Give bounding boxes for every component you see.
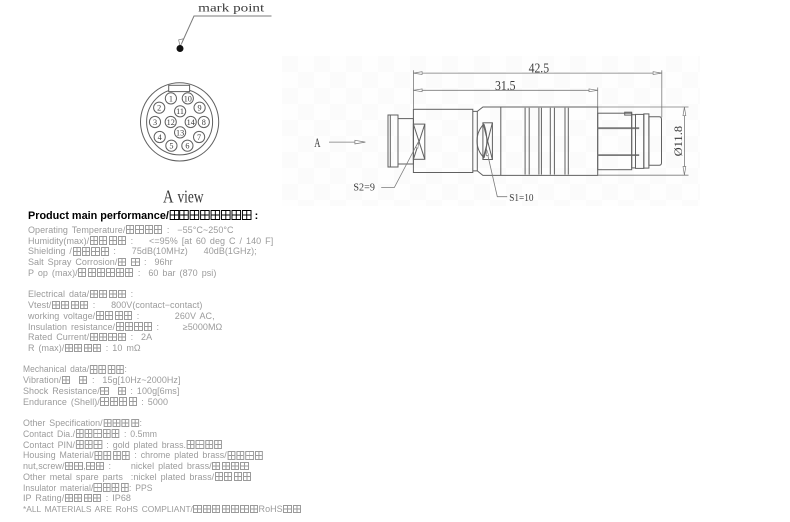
svg-text:14: 14 (187, 118, 195, 127)
svg-text:11: 11 (176, 107, 184, 116)
svg-text:10: 10 (184, 94, 192, 103)
svg-text:4: 4 (158, 133, 162, 142)
svg-text:8: 8 (202, 118, 206, 127)
svg-text:13: 13 (176, 128, 184, 137)
svg-text:31.5: 31.5 (495, 78, 516, 93)
svg-text:S2=9: S2=9 (353, 183, 375, 194)
svg-text:7: 7 (197, 133, 201, 142)
svg-text:5: 5 (169, 142, 173, 151)
svg-text:12: 12 (167, 118, 175, 127)
svg-text:A: A (314, 136, 320, 150)
svg-text:2: 2 (157, 104, 161, 113)
svg-text:42.5: 42.5 (529, 61, 550, 76)
svg-text:9: 9 (198, 104, 202, 113)
svg-text:6: 6 (185, 142, 189, 151)
svg-text:1: 1 (169, 94, 173, 103)
svg-text:Ø11.8: Ø11.8 (671, 126, 685, 157)
svg-text:3: 3 (153, 118, 157, 127)
svg-text:A: A (163, 186, 174, 206)
svg-text:mark point: mark point (198, 1, 265, 15)
svg-text:view: view (178, 186, 204, 206)
svg-text:S1=10: S1=10 (509, 193, 533, 204)
